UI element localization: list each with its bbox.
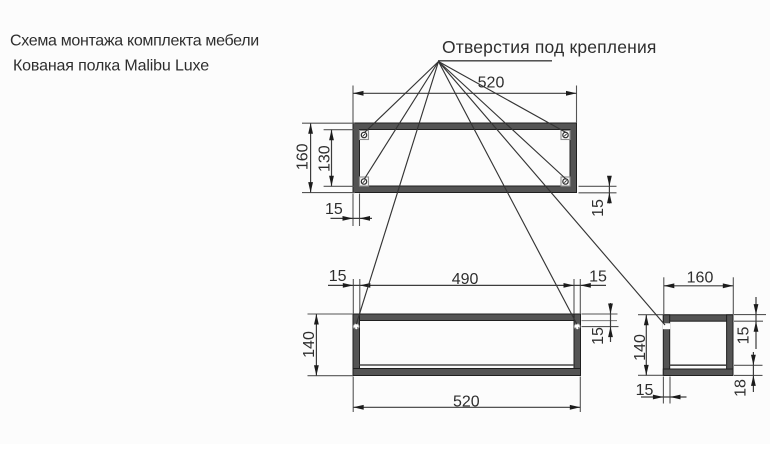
svg-text:Отверстия под крепления: Отверстия под крепления bbox=[442, 37, 657, 57]
svg-text:Кованая полка Malibu Luxe: Кованая полка Malibu Luxe bbox=[13, 57, 209, 74]
svg-text:15: 15 bbox=[589, 268, 607, 285]
svg-text:160: 160 bbox=[687, 269, 714, 286]
svg-text:140: 140 bbox=[301, 331, 318, 358]
svg-text:130: 130 bbox=[316, 145, 333, 172]
svg-text:15: 15 bbox=[590, 327, 607, 345]
svg-text:15: 15 bbox=[590, 199, 607, 217]
svg-text:15: 15 bbox=[735, 327, 752, 345]
svg-text:520: 520 bbox=[478, 75, 505, 92]
svg-text:520: 520 bbox=[453, 393, 480, 410]
svg-text:15: 15 bbox=[329, 268, 347, 285]
svg-text:490: 490 bbox=[452, 271, 479, 288]
svg-text:Схема монтажа комплекта мебели: Схема монтажа комплекта мебели bbox=[10, 32, 259, 49]
svg-text:160: 160 bbox=[295, 143, 312, 170]
svg-text:15: 15 bbox=[636, 382, 654, 399]
svg-text:18: 18 bbox=[732, 379, 749, 397]
svg-text:15: 15 bbox=[325, 201, 343, 218]
svg-text:140: 140 bbox=[632, 334, 649, 361]
